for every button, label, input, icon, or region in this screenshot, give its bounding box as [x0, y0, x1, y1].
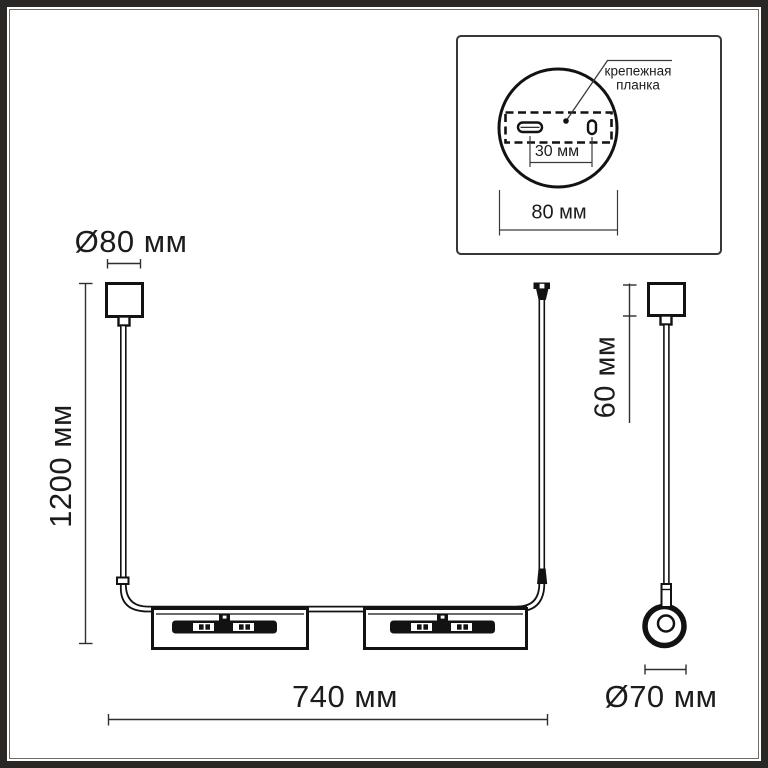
cable-grip-top [534, 283, 551, 301]
dim-line-canopy-height [623, 284, 637, 424]
dim-line-suspension-height [79, 284, 93, 644]
canopy-left-stem [119, 317, 130, 326]
dim-label-canopy-diameter: Ø80 мм [75, 224, 188, 260]
canopy-back-circle [499, 69, 617, 187]
mounting-plate-label-line1: крепежная [605, 65, 672, 79]
leader-dot [563, 118, 569, 124]
mounting-hole [588, 121, 596, 135]
canopy-left [107, 284, 143, 317]
dim-label-suspension-height: 1200 мм [43, 404, 79, 528]
cable-grip-bottom [537, 569, 547, 585]
rod-collar-left [117, 578, 129, 585]
mounting-plate-label-line2: планка [605, 78, 672, 92]
dim-line-canopy-diameter [108, 259, 141, 269]
mounting-plate-label: крепежная планка [605, 65, 672, 92]
dim-label-ring-diameter: Ø70 мм [605, 679, 718, 715]
rod-collar-side [662, 584, 672, 607]
canopy-side [649, 284, 685, 316]
technical-drawing-page: Ø80 мм 1200 мм 60 мм 740 мм Ø70 мм крепе… [0, 0, 768, 768]
suspension-rod-right [539, 299, 544, 570]
dimension-lines [79, 259, 686, 726]
dim-label-canopy-height: 60 мм [590, 336, 623, 419]
end-ball-joint [658, 616, 674, 632]
dim-label-plate-width: 80 мм [531, 202, 586, 225]
dim-line-fixture-width [109, 714, 548, 726]
fixture-side-view [645, 284, 685, 646]
dim-label-fixture-width: 740 мм [292, 679, 398, 715]
suspension-rod-left [121, 326, 126, 578]
dim-line-ring-diameter [645, 665, 686, 675]
suspension-rod-side [664, 325, 669, 585]
lamp-dimension-drawing [0, 0, 768, 768]
dim-label-slot-spacing: 30 мм [535, 143, 579, 161]
fixture-front-view [107, 283, 551, 649]
canopy-side-stem [661, 316, 672, 325]
elbow-left [121, 584, 148, 612]
